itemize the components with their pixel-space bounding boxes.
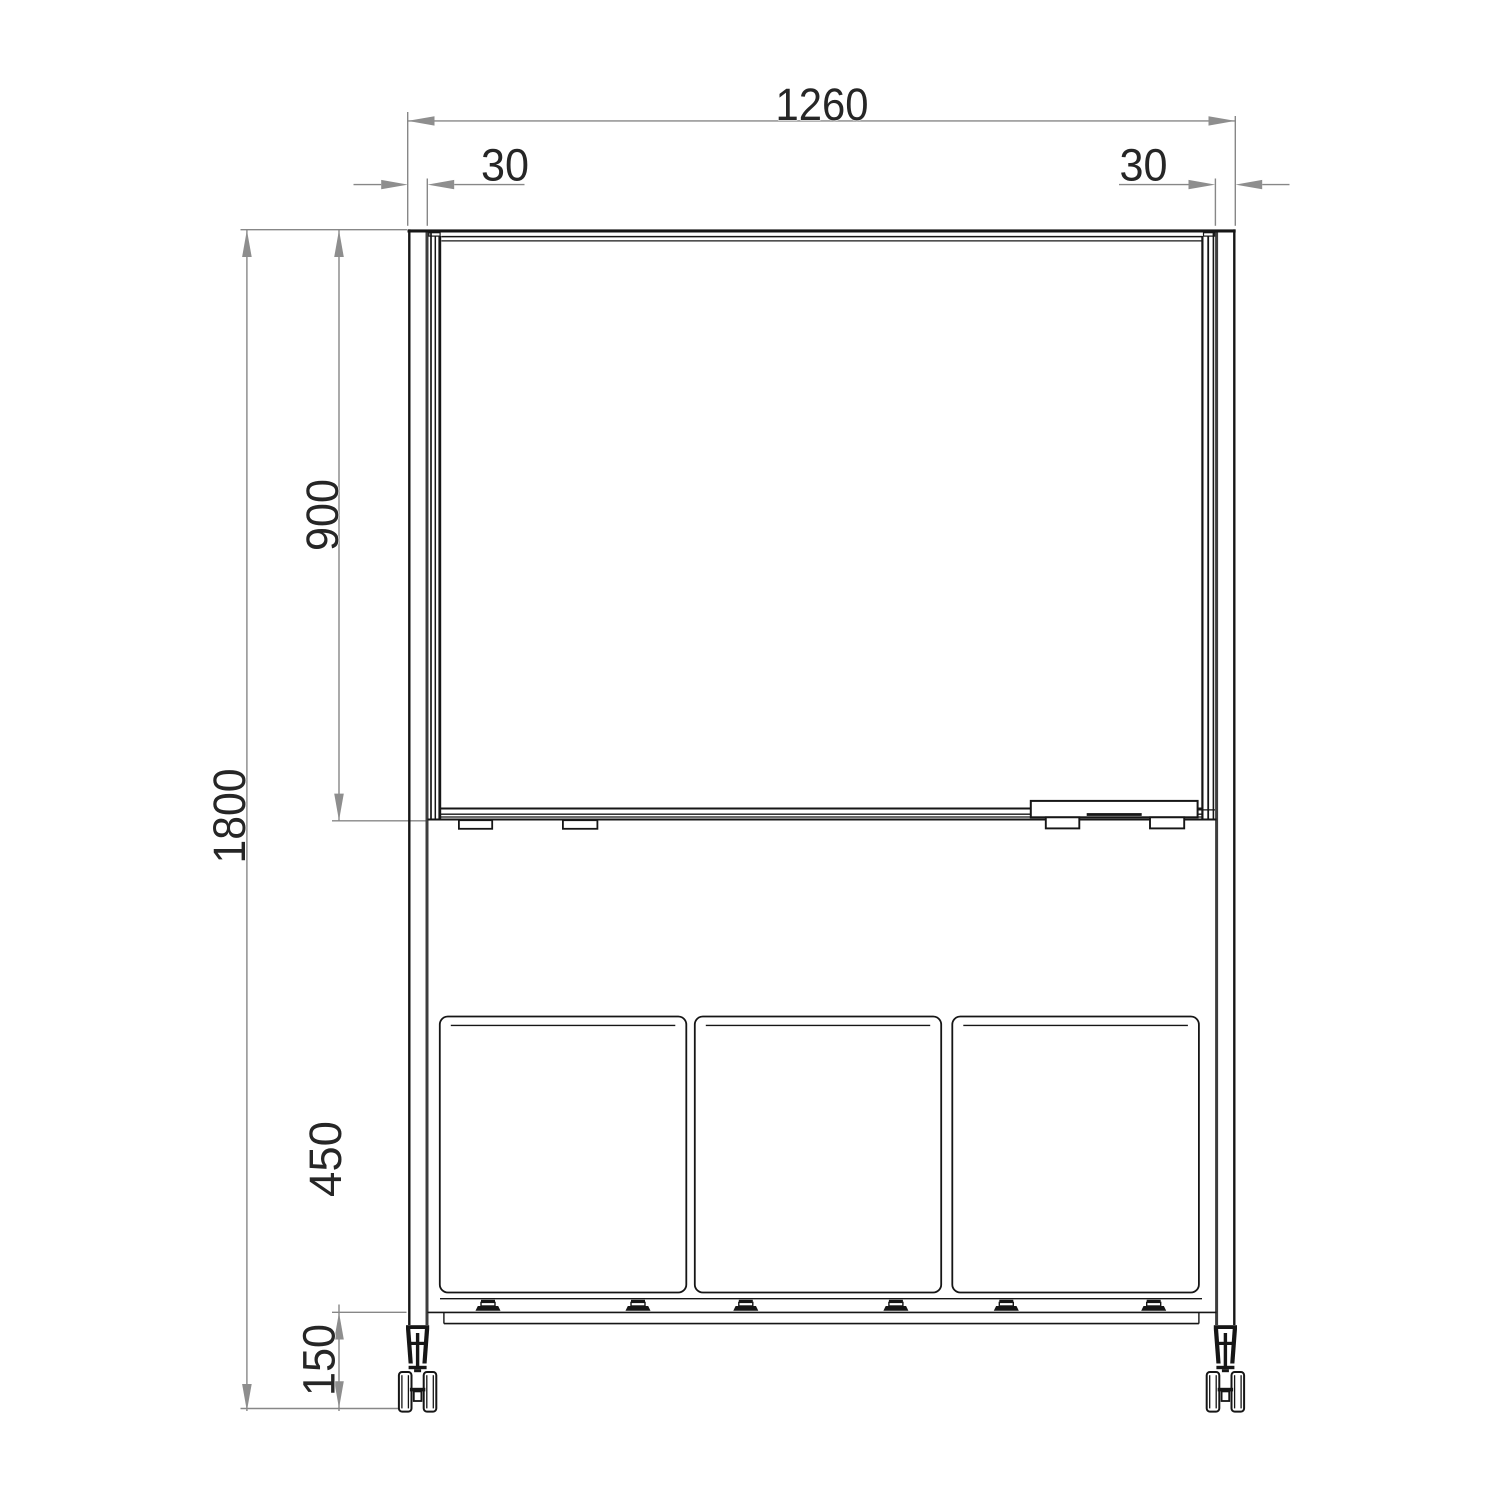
svg-text:30: 30 xyxy=(481,140,529,191)
svg-text:1260: 1260 xyxy=(776,79,869,130)
svg-text:1800: 1800 xyxy=(204,769,255,864)
svg-text:30: 30 xyxy=(1120,140,1168,191)
svg-text:450: 450 xyxy=(300,1121,351,1197)
svg-text:150: 150 xyxy=(294,1324,345,1396)
svg-text:900: 900 xyxy=(297,479,348,551)
